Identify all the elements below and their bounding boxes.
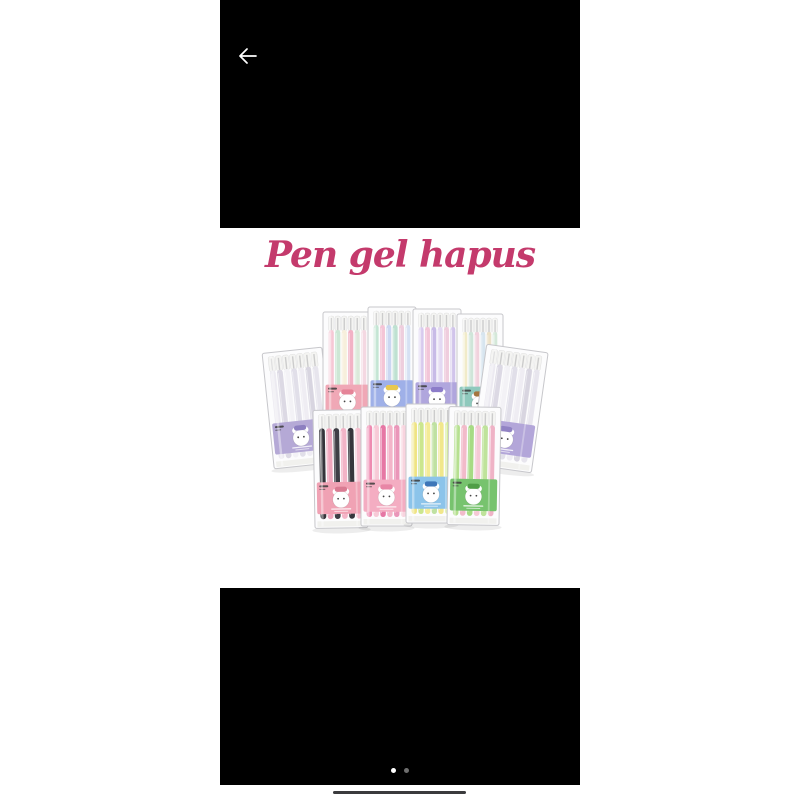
back-arrow-icon xyxy=(236,44,260,68)
pen-pack xyxy=(444,407,503,531)
phone-screen: Pen gel hapus xyxy=(220,0,580,800)
product-photo[interactable]: Pen gel hapus xyxy=(220,228,580,588)
pager-dot[interactable] xyxy=(404,768,409,773)
pager xyxy=(220,768,580,773)
letterbox-bottom xyxy=(220,588,580,785)
home-indicator[interactable] xyxy=(333,791,466,794)
back-button[interactable] xyxy=(232,40,264,72)
home-strip xyxy=(220,785,580,800)
letterbox-top xyxy=(220,0,580,228)
pager-dot[interactable] xyxy=(391,768,396,773)
pen-packs-illustration xyxy=(220,228,580,588)
